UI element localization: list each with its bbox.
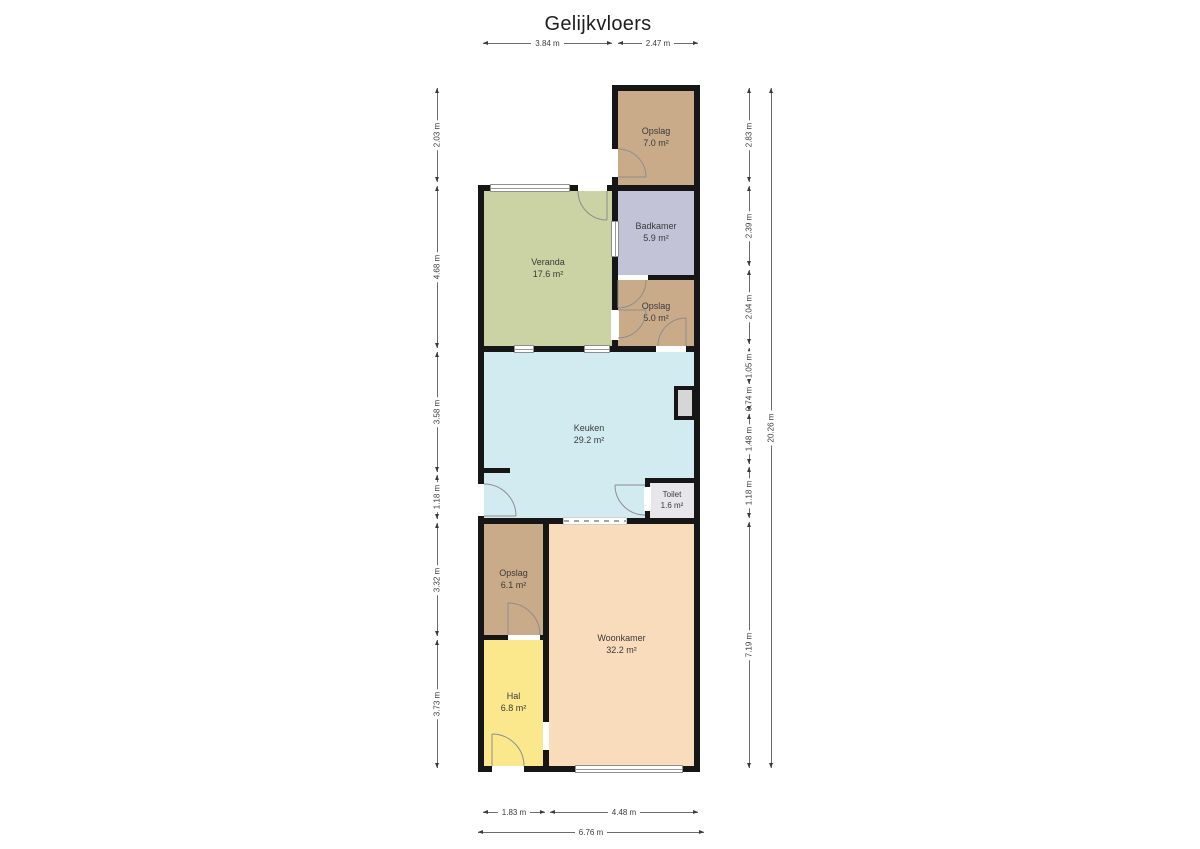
door-arc bbox=[618, 280, 646, 308]
dim-bottom-left: 1.83 m bbox=[483, 806, 545, 818]
room-name: Keuken bbox=[574, 423, 605, 435]
dim-label: 6.76 m bbox=[575, 828, 607, 837]
dim-left-6: 3.73 m bbox=[431, 640, 443, 768]
room-area: 32.2 m² bbox=[597, 645, 645, 657]
dim-top-left: 3.84 m bbox=[483, 37, 612, 49]
wall bbox=[478, 185, 484, 484]
dim-left-4: 1.18 m bbox=[431, 475, 443, 519]
dim-label: 20.26 m bbox=[766, 411, 777, 446]
room-area: 6.1 m² bbox=[499, 580, 528, 592]
dim-label: 2.83 m bbox=[744, 120, 755, 150]
room-area: 6.8 m² bbox=[501, 703, 527, 715]
room-name: Opslag bbox=[499, 568, 528, 580]
dim-label: 7.19 m bbox=[744, 630, 755, 660]
dim-right-6: 1.48 m bbox=[743, 414, 755, 464]
room-label: Opslag 6.1 m² bbox=[499, 568, 528, 591]
door-opening bbox=[656, 346, 686, 352]
dim-label: 1.48 m bbox=[744, 424, 755, 454]
dim-bottom-right: 4.48 m bbox=[550, 806, 698, 818]
door-arc bbox=[658, 318, 686, 346]
dim-right-5: 0.74 m bbox=[743, 387, 755, 411]
dim-label: 0.74 m bbox=[744, 384, 755, 414]
door-opening bbox=[543, 722, 549, 750]
window bbox=[584, 345, 610, 353]
room-label: Woonkamer 32.2 m² bbox=[597, 633, 645, 656]
door-arc bbox=[508, 603, 540, 635]
dim-label: 4.68 m bbox=[432, 252, 443, 282]
door-opening bbox=[644, 487, 651, 511]
room-label: Veranda 17.6 m² bbox=[531, 257, 565, 280]
floorplan-page: { "title": "Gelijkvloers", "rooms": [ { … bbox=[0, 0, 1200, 849]
room-name: Toilet bbox=[661, 490, 684, 500]
window bbox=[490, 184, 570, 192]
dim-bottom-total: 6.76 m bbox=[478, 826, 704, 838]
dim-right-7: 1.18 m bbox=[743, 467, 755, 518]
room-woonkamer: Woonkamer 32.2 m² bbox=[549, 524, 694, 766]
room-name: Opslag bbox=[642, 126, 671, 138]
room-label: Toilet 1.6 m² bbox=[661, 490, 684, 511]
room-label: Keuken 29.2 m² bbox=[574, 423, 605, 446]
door-arc bbox=[484, 484, 516, 516]
wall bbox=[645, 478, 694, 483]
dim-label: 3.73 m bbox=[432, 689, 443, 719]
window bbox=[514, 345, 534, 353]
wall bbox=[478, 516, 484, 772]
dim-label: 1.18 m bbox=[744, 477, 755, 507]
dim-label: 2.03 m bbox=[432, 120, 443, 150]
door-arc bbox=[578, 191, 607, 220]
dim-top-right: 2.47 m bbox=[618, 37, 698, 49]
dim-left-2: 4.68 m bbox=[431, 186, 443, 348]
door-arc bbox=[492, 734, 524, 766]
room-area: 17.6 m² bbox=[531, 269, 565, 281]
wall bbox=[612, 85, 700, 91]
plan-title: Gelijkvloers bbox=[468, 13, 728, 36]
door-arc bbox=[618, 310, 646, 338]
door-opening bbox=[508, 635, 540, 640]
dim-label: 2.47 m bbox=[642, 39, 674, 48]
room-name: Veranda bbox=[531, 257, 565, 269]
dim-label: 1.18 m bbox=[432, 482, 443, 512]
room-area: 29.2 m² bbox=[574, 435, 605, 447]
room-name: Woonkamer bbox=[597, 633, 645, 645]
dim-label: 2.04 m bbox=[744, 292, 755, 322]
room-label: Opslag 7.0 m² bbox=[642, 126, 671, 149]
dim-label: 3.32 m bbox=[432, 564, 443, 594]
dim-right-2: 2.39 m bbox=[743, 186, 755, 266]
dim-label: 3.84 m bbox=[531, 39, 563, 48]
dim-left-5: 3.32 m bbox=[431, 523, 443, 636]
room-name: Hal bbox=[501, 691, 527, 703]
wall bbox=[612, 91, 618, 149]
dim-right-total: 20.26 m bbox=[765, 88, 777, 768]
door-opening bbox=[492, 766, 524, 772]
dim-right-8: 7.19 m bbox=[743, 522, 755, 768]
dim-right-3: 2.04 m bbox=[743, 270, 755, 344]
room-name: Badkamer bbox=[635, 221, 676, 233]
room-area: 1.6 m² bbox=[661, 501, 684, 511]
sliding-divider bbox=[563, 517, 627, 525]
niche-inner bbox=[678, 390, 692, 416]
room-area: 7.0 m² bbox=[642, 138, 671, 150]
dim-label: 4.48 m bbox=[608, 808, 640, 817]
dim-label: 1.83 m bbox=[498, 808, 530, 817]
window bbox=[575, 765, 683, 773]
door-arc bbox=[615, 485, 645, 515]
window bbox=[611, 221, 619, 257]
dim-label: 1.05 m bbox=[744, 351, 755, 381]
dim-label: 2.39 m bbox=[744, 211, 755, 241]
dim-right-1: 2.83 m bbox=[743, 88, 755, 182]
room-label: Hal 6.8 m² bbox=[501, 691, 527, 714]
room-area: 5.9 m² bbox=[635, 233, 676, 245]
wall bbox=[484, 468, 510, 473]
room-label: Badkamer 5.9 m² bbox=[635, 221, 676, 244]
dim-left-1: 2.03 m bbox=[431, 88, 443, 182]
dim-right-4: 1.05 m bbox=[743, 348, 755, 384]
room-badkamer: Badkamer 5.9 m² bbox=[618, 191, 694, 275]
dim-label: 3.58 m bbox=[432, 397, 443, 427]
room-toilet: Toilet 1.6 m² bbox=[650, 483, 694, 518]
door-arc bbox=[618, 149, 646, 177]
dim-left-3: 3.58 m bbox=[431, 352, 443, 472]
